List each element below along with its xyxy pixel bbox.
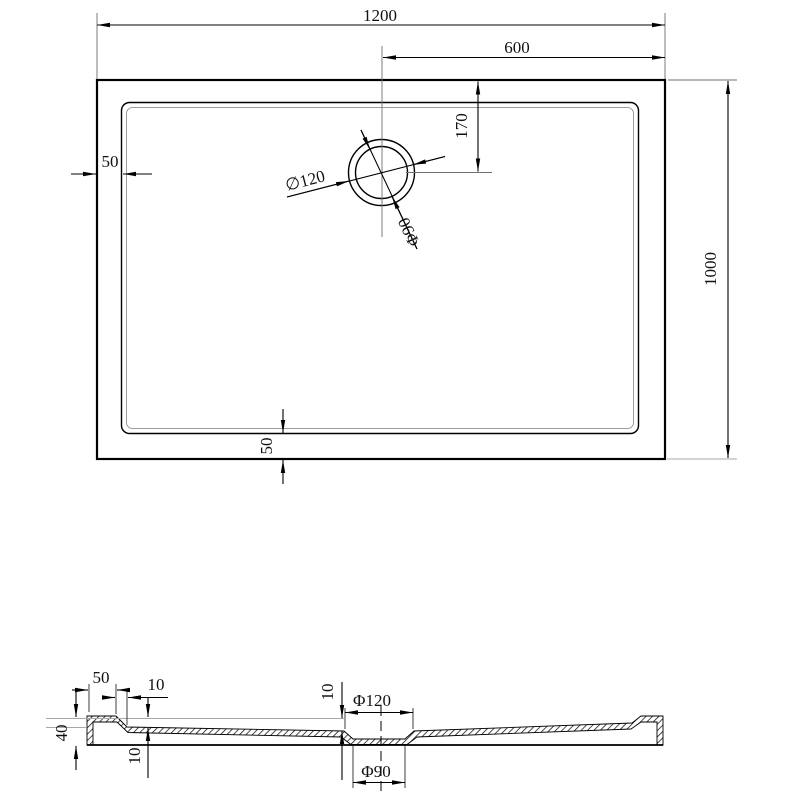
dim-rim-left-label: 50	[102, 152, 119, 171]
tray-basin-edge	[127, 108, 634, 429]
dim-section-basin-depth-label: 10	[125, 748, 144, 765]
dim-center-to-right: 600	[383, 38, 665, 58]
tray-outer-outline	[97, 80, 665, 459]
tray-section-shell	[87, 716, 663, 745]
dim-section-basin-depth: 10	[125, 697, 148, 778]
dim-drain-from-top: 170	[452, 82, 478, 172]
dim-drain-inner-dia: Φ90	[361, 130, 424, 249]
dim-center-to-right-label: 600	[504, 38, 530, 57]
dim-drain-inner-dia-label: Φ90	[394, 215, 424, 250]
dim-rim-bottom-label: 50	[257, 438, 276, 455]
dim-section-rim-width-label: 50	[93, 668, 110, 687]
dim-section-recess-inner-label: Φ90	[361, 762, 390, 781]
dim-section-recess-outer-label: Φ120	[353, 691, 391, 710]
technical-drawing-page: 1200 600 170 50 50 1000	[0, 0, 800, 800]
dim-section-step-width-label: 10	[148, 675, 165, 694]
dim-drain-from-top-label: 170	[452, 113, 471, 139]
dim-section-recess-inner: Φ90	[353, 762, 405, 783]
dim-section-total-height: 40	[52, 692, 76, 770]
dim-section-step-width: 10	[103, 675, 168, 698]
tray-rim-inner-edge	[122, 103, 639, 434]
dim-rim-bottom: 50	[257, 409, 283, 484]
section-view: 50 10 40 10 10 Φ120	[46, 668, 663, 792]
dim-drain-outer-dia-label: ∅120	[283, 166, 327, 194]
dim-section-recess-outer: Φ120	[345, 691, 413, 713]
dim-overall-height: 1000	[701, 81, 728, 458]
dim-section-rim-width: 50	[72, 668, 128, 690]
dim-section-drain-drop-label: 10	[318, 684, 337, 701]
top-view: 1200 600 170 50 50 1000	[71, 6, 737, 484]
dim-section-total-height-label: 40	[52, 725, 71, 742]
dim-rim-left: 50	[71, 152, 152, 174]
dim-overall-height-label: 1000	[701, 252, 720, 286]
dim-overall-width-label: 1200	[363, 6, 397, 25]
dim-overall-width: 1200	[97, 6, 665, 25]
technical-drawing-canvas: 1200 600 170 50 50 1000	[0, 0, 800, 800]
